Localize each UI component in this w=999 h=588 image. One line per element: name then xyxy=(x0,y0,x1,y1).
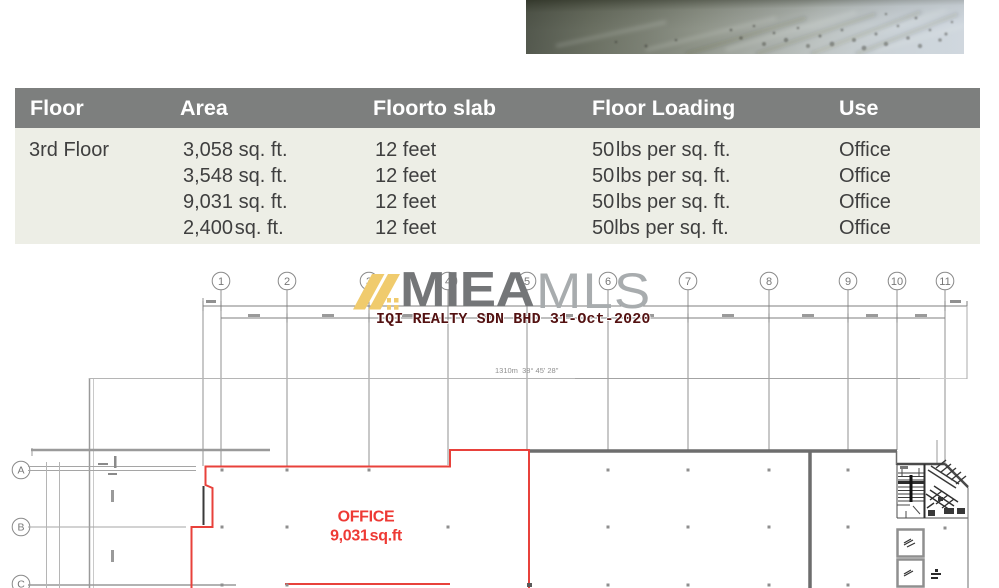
svg-text:A: A xyxy=(17,465,24,477)
svg-text:7: 7 xyxy=(685,276,691,288)
svg-text:2: 2 xyxy=(284,276,290,288)
svg-text:B: B xyxy=(17,522,24,534)
svg-text:1: 1 xyxy=(218,276,224,288)
svg-text:C: C xyxy=(17,579,25,588)
svg-text:10: 10 xyxy=(891,276,903,288)
svg-text:8: 8 xyxy=(766,276,772,288)
svg-text:11: 11 xyxy=(939,276,950,288)
svg-text:OFFICE: OFFICE xyxy=(338,509,395,526)
svg-text:1310m 38° 45' 28": 1310m 38° 45' 28" xyxy=(495,366,559,375)
svg-text:9: 9 xyxy=(845,276,851,288)
svg-text:9,031 sq.ft: 9,031 sq.ft xyxy=(330,528,403,545)
